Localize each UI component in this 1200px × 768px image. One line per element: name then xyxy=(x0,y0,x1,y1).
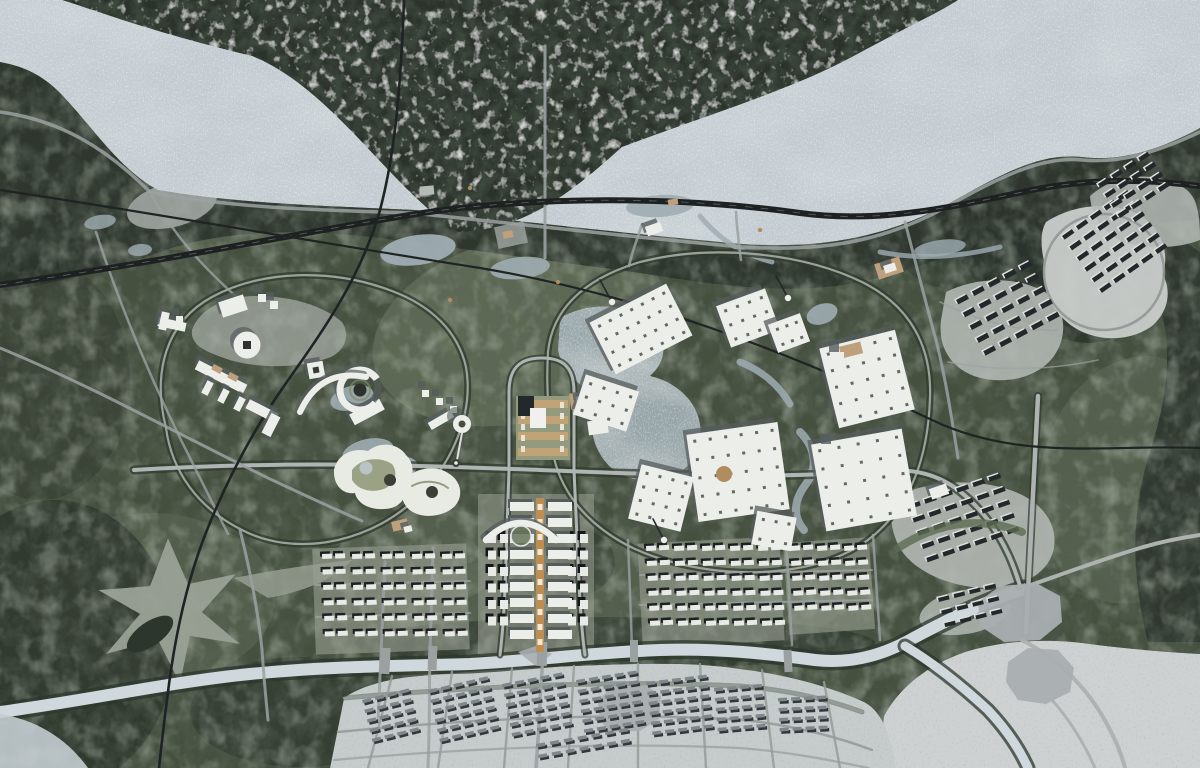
masterplan-canvas xyxy=(0,0,1200,768)
masterplan-render xyxy=(0,0,1200,768)
scene-root xyxy=(0,0,1200,768)
